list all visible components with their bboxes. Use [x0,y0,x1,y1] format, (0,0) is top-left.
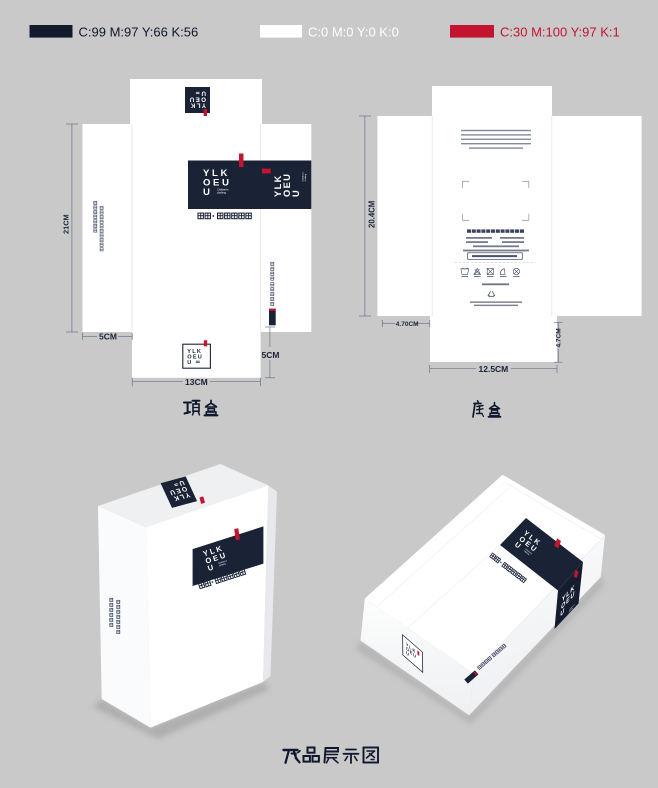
svg-text:C:99 M:97 Y:66 K:56: C:99 M:97 Y:66 K:56 [79,25,199,40]
svg-text:C:0 M:0 Y:0 K:0: C:0 M:0 Y:0 K:0 [308,25,399,40]
svg-text:clothing: clothing [304,173,307,181]
svg-text:12.5CM: 12.5CM [479,364,509,374]
svg-text:13CM: 13CM [185,377,208,387]
svg-text:C:30 M:100 Y:97 K:1: C:30 M:100 Y:97 K:1 [500,25,620,40]
svg-text:20.4CM: 20.4CM [368,201,377,228]
svg-text:U: U [203,187,210,198]
svg-text:4.7CM: 4.7CM [556,328,563,347]
svg-text:clothing: clothing [217,191,226,195]
svg-text:21CM: 21CM [62,214,71,234]
svg-text:4.70CM: 4.70CM [396,321,419,328]
svg-text:5CM: 5CM [262,350,280,360]
svg-text:U: U [201,90,206,97]
svg-text:Children's: Children's [302,171,305,182]
svg-text:5CM: 5CM [99,332,117,342]
svg-text:U: U [187,360,191,366]
svg-text:U: U [291,190,301,197]
